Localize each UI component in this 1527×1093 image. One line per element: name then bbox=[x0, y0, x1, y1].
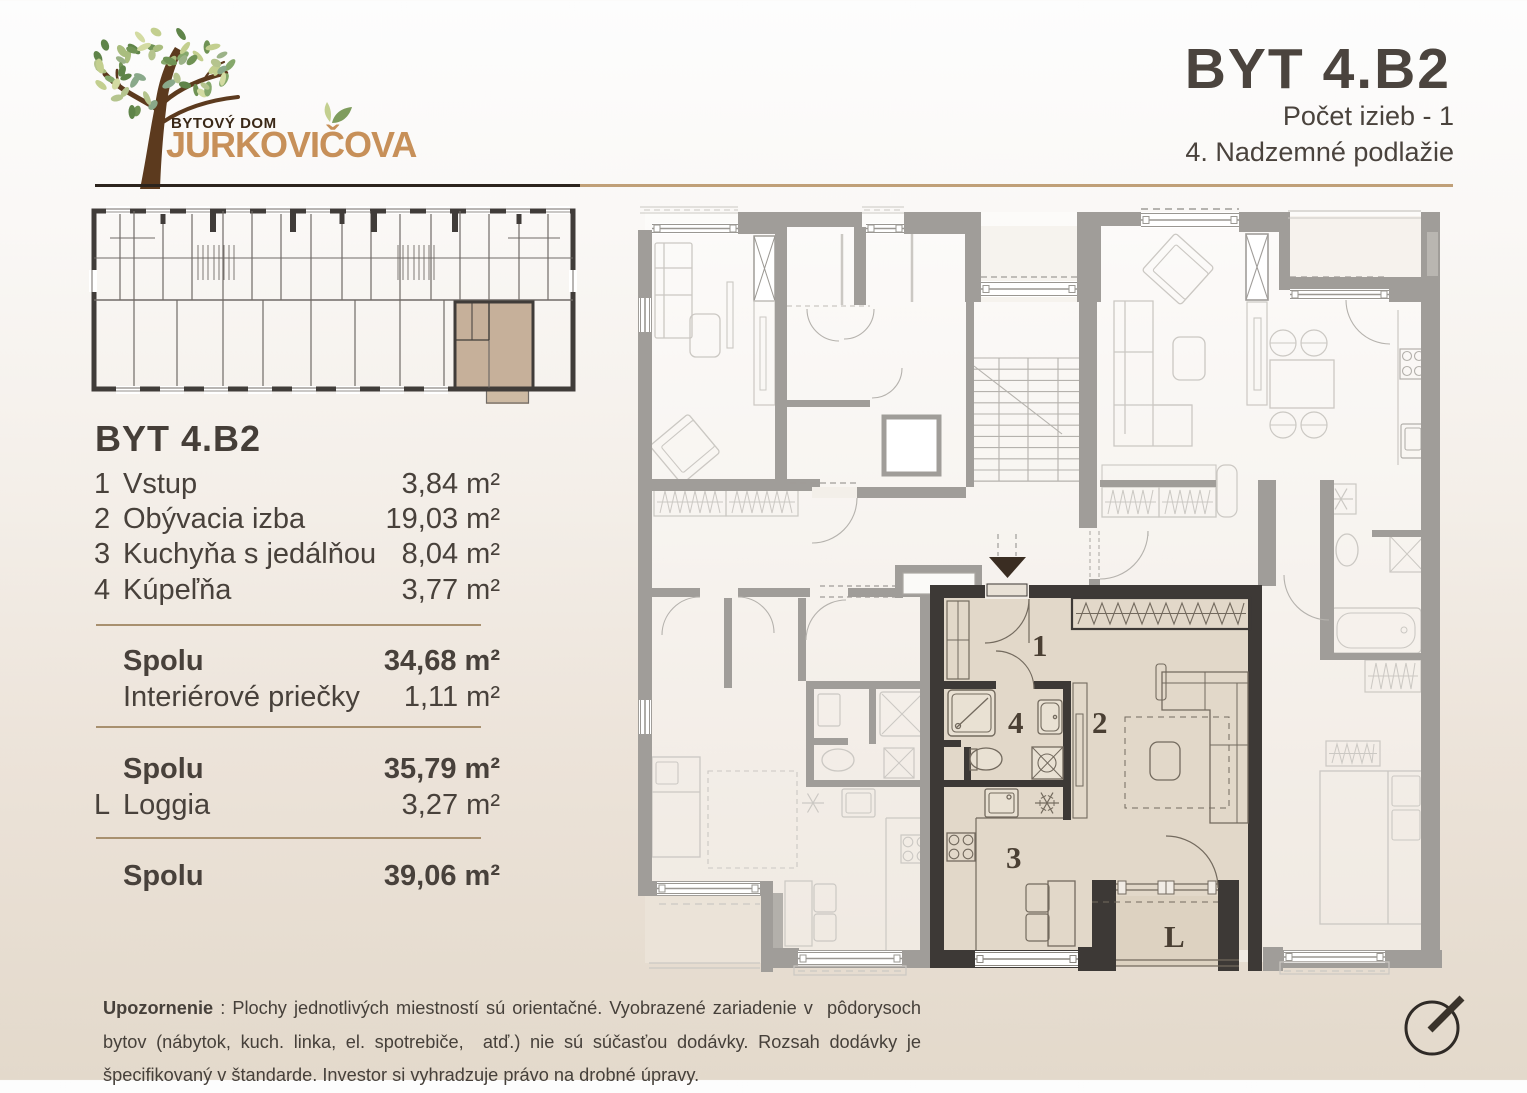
svg-text:3: 3 bbox=[1006, 840, 1022, 875]
svg-text:1: 1 bbox=[1032, 628, 1048, 663]
svg-text:L: L bbox=[1164, 919, 1185, 954]
svg-text:2: 2 bbox=[1092, 705, 1108, 740]
svg-text:4: 4 bbox=[1008, 705, 1024, 740]
svg-text:JURKOVIČOVA: JURKOVIČOVA bbox=[166, 123, 417, 165]
